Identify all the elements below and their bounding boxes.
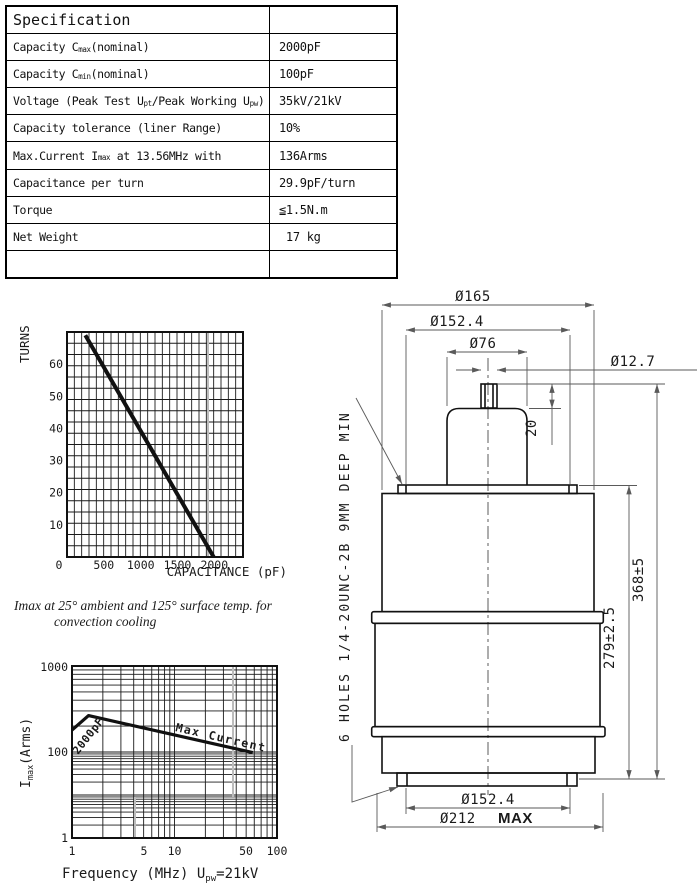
dim-d212-max: MAX (498, 810, 533, 827)
turns-curve (85, 335, 213, 557)
freq-x-axis-title: Frequency (MHz) Upw=21kV (62, 866, 259, 884)
capacitor-dimension-drawing: Ø165 Ø152.4 Ø76 Ø12.7 20 368±5 279±2.5 Ø… (325, 290, 700, 845)
table-row: Capacity tolerance (liner Range) 10% (7, 115, 396, 142)
dim-d212: Ø212 (440, 811, 476, 827)
svg-text:40: 40 (49, 421, 63, 435)
row-value (270, 251, 396, 277)
row-label (7, 251, 270, 277)
bottom-plate (397, 773, 577, 786)
dim-h20: 20 (524, 419, 540, 437)
row-label: Voltage (Peak Test Upt/Peak Working Upw) (7, 88, 270, 114)
spec-table: Specification Capacity Cmax(nominal) 200… (5, 5, 398, 279)
table-header-row: Specification (7, 7, 396, 34)
svg-text:1: 1 (61, 831, 68, 845)
svg-text:10: 10 (49, 518, 63, 532)
table-row: Voltage (Peak Test Upt/Peak Working Upw)… (7, 88, 396, 115)
row-label: Net Weight (7, 224, 270, 250)
svg-text:5: 5 (141, 844, 148, 858)
svg-text:50: 50 (239, 844, 253, 858)
svg-text:1000: 1000 (127, 558, 155, 572)
svg-text:0: 0 (56, 558, 63, 572)
svg-text:60: 60 (49, 357, 63, 371)
turns-chart-grid (67, 332, 243, 557)
bottom-cylinder (382, 737, 595, 773)
svg-text:2000: 2000 (200, 558, 228, 572)
datasheet-page: Specification Capacity Cmax(nominal) 200… (0, 0, 700, 885)
middle-cylinder (375, 623, 600, 726)
table-row: Capacity Cmax(nominal) 2000pF (7, 34, 396, 61)
row-value: 136Arms (270, 142, 396, 168)
top-insulator-block (447, 409, 527, 486)
cooling-note-line1: Imax at 25° ambient and 125° surface tem… (14, 598, 274, 614)
dim-d12-7: Ø12.7 (611, 354, 656, 370)
svg-text:20: 20 (49, 486, 63, 500)
row-value: 10% (270, 115, 396, 141)
svg-text:100: 100 (267, 844, 288, 858)
curve-label-2000pF: 2000pF (70, 715, 107, 757)
upper-flange-ring (372, 612, 604, 624)
holes-note-text: 6 HOLES 1/4-20UNC-2B 9MM DEEP MIN (338, 411, 353, 742)
row-value: 35kV/21kV (270, 88, 396, 114)
dimension-labels: Ø165 Ø152.4 Ø76 Ø12.7 20 368±5 279±2.5 Ø… (338, 290, 655, 827)
turns-y-axis-title: TURNS (17, 325, 32, 363)
turns-y-ticks: 10 20 30 40 50 60 (49, 357, 63, 532)
row-label: Capacity tolerance (liner Range) (7, 115, 270, 141)
row-label: Max.Current Imax at 13.56MHz with (7, 142, 270, 168)
svg-text:500: 500 (93, 558, 114, 572)
table-row-empty (7, 251, 396, 277)
row-value: 2000pF (270, 34, 396, 60)
dim-d165: Ø165 (455, 290, 491, 305)
dim-h368: 368±5 (631, 557, 647, 602)
turns-capacitance-chart: TURNS CAPACITANCE (pF) 10 20 30 40 50 60… (0, 295, 300, 595)
cooling-note-line2: convection cooling (14, 614, 274, 630)
row-value: 100pF (270, 61, 396, 87)
row-value: 17 kg (270, 224, 396, 250)
turns-x-ticks: 0 500 1000 1500 2000 (56, 558, 229, 572)
svg-text:50: 50 (49, 389, 63, 403)
svg-text:1: 1 (69, 844, 76, 858)
cooling-note: Imax at 25° ambient and 125° surface tem… (14, 598, 274, 630)
row-label: Capacity Cmax(nominal) (7, 34, 270, 60)
freq-x-ticks: 1 5 10 50 100 (69, 844, 288, 858)
table-row: Capacitance per turn 29.9pF/turn (7, 170, 396, 197)
dim-h279: 279±2.5 (602, 606, 618, 669)
dim-d152-bot: Ø152.4 (461, 792, 515, 808)
svg-text:1000: 1000 (40, 660, 68, 674)
dim-d152-top: Ø152.4 (430, 314, 484, 330)
row-label: Capacity Cmin(nominal) (7, 61, 270, 87)
table-row: Net Weight 17 kg (7, 224, 396, 251)
table-row: Capacity Cmin(nominal) 100pF (7, 61, 396, 88)
table-header-value (270, 7, 396, 33)
table-title: Specification (7, 7, 270, 33)
svg-text:10: 10 (168, 844, 182, 858)
row-label: Capacitance per turn (7, 170, 270, 196)
svg-text:1500: 1500 (164, 558, 192, 572)
holes-leader-top (356, 398, 402, 484)
table-row: Max.Current Imax at 13.56MHz with 136Arm… (7, 142, 396, 169)
top-stud (481, 384, 497, 408)
svg-text:100: 100 (47, 745, 68, 759)
row-value: 29.9pF/turn (270, 170, 396, 196)
freq-y-axis-title: Imax(Arms) (19, 718, 36, 788)
top-flange-plate (398, 485, 577, 494)
dim-d76: Ø76 (470, 336, 497, 352)
row-label: Torque (7, 197, 270, 223)
imax-frequency-chart: 2000pF Max Current Imax(Arms) Frequency … (0, 645, 310, 885)
table-row: Torque ≦1.5N.m (7, 197, 396, 224)
row-value: ≦1.5N.m (270, 197, 396, 223)
svg-text:30: 30 (49, 454, 63, 468)
freq-y-ticks: 1000 100 1 (40, 660, 68, 845)
